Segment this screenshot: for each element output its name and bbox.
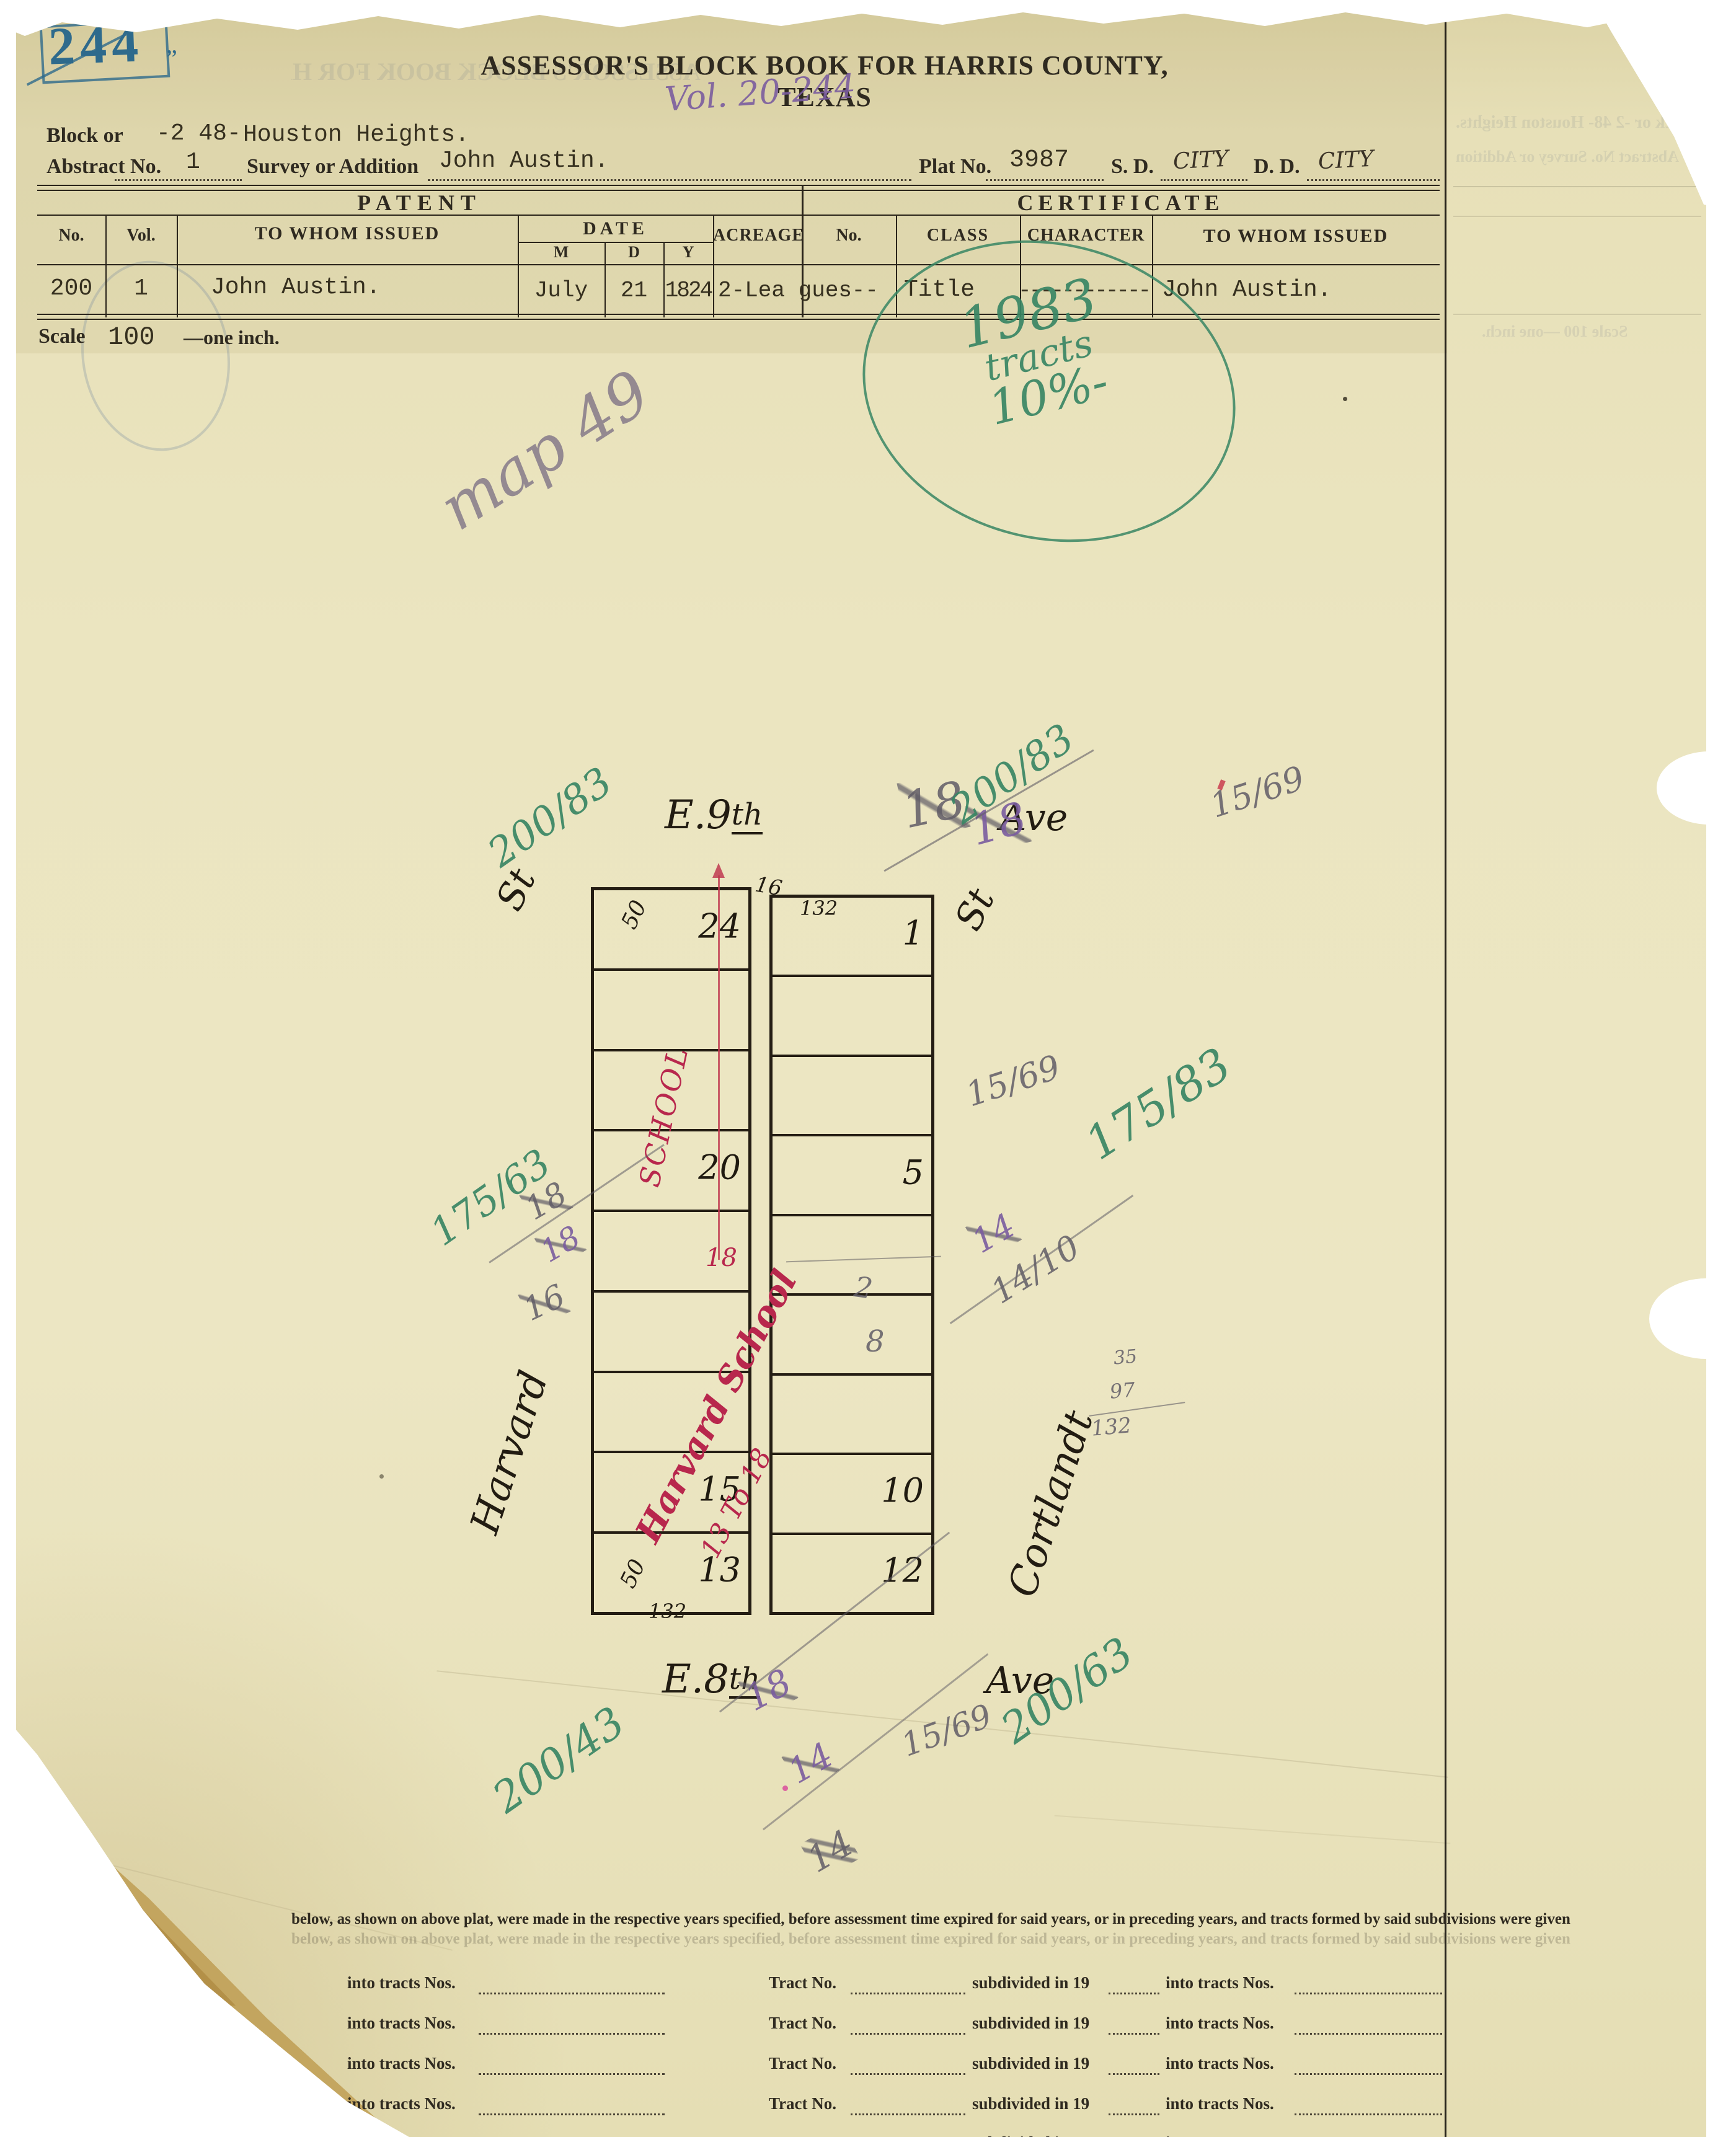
form-label: subdivided in 19 [972,1973,1089,1993]
bleed-through-abstract-line: Abstract No. Survey or Addition [1456,148,1679,166]
dotted-line [1295,2113,1442,2115]
subdivision-form-row: into tracts Nos.Tract No.subdivided in 1… [0,1973,1736,2002]
ditto-mark: „ [166,30,177,59]
ghost-text: -2 48- [1588,113,1631,132]
abstract-label: Abstract No. [46,155,161,179]
form-label: into tracts Nos. [1166,1973,1274,1993]
ghost-text: Abstract No. [1591,148,1679,166]
lot-number: 10 [881,1471,924,1510]
patent-section-title: PATENT [37,190,802,216]
sd-value-handwritten: CITY [1172,146,1229,175]
col-header-acreage: ACREAGE [713,226,802,246]
lot-row: 12 [773,1535,931,1612]
form-intro-ghost: below, as shown on above plat, were made… [291,1931,1570,1948]
dotted-line [479,2032,665,2035]
dim-16-alley: 16 [753,872,784,901]
scanned-assessor-block-book-page: 244 „ ASSESSOR'S BLOCK BOOK FOR HARRIS C… [0,0,1736,2137]
patent-vol: 1 [105,275,177,302]
form-label: into tracts Nos. [347,2014,456,2033]
lot-row: 24 [594,890,748,971]
street-e9-sup: th [732,797,763,834]
lot-number: 1 [903,914,924,953]
form-label: into tracts Nos. [347,2094,456,2113]
stamp-box [40,19,170,84]
dotted-line [1109,2073,1159,2075]
subdivision-form-row: into tracts Nos.Tract No.subdivided in 1… [0,2054,1736,2082]
form-label: Tract No. [769,1973,836,1993]
table-rule [37,215,1440,216]
ink-speck [1343,397,1347,401]
form-label: into tracts Nos. [1166,2094,1274,2113]
scale-suffix: —one inch. [184,326,280,349]
pencil-note-8: 8 [866,1324,885,1359]
ink-speck [379,1474,384,1479]
patent-month: July [518,278,604,303]
dotted-line [851,2073,965,2075]
dotted-line [1295,2032,1442,2035]
plat-no-value: 3987 [1009,146,1069,174]
dotted-line [1295,1992,1442,1994]
ghost-text: —one inch. [1482,322,1560,340]
lot-number: 5 [903,1153,924,1192]
street-e9: E.9 [665,792,732,838]
dotted-line [1109,2113,1159,2115]
patent-no: 200 [37,275,105,302]
form-label: subdivided in 19 [972,2054,1089,2073]
street-e8: E.8 [662,1657,729,1702]
dotted-line [1161,179,1247,181]
survey-value: John Austin. [439,148,609,174]
col-header-issued: TO WHOM ISSUED [177,223,518,244]
red-arrow-line [718,875,720,1260]
bleed-through-scale-line: Scale 100 —one inch. [1482,322,1627,341]
subdivision-form-row: into tracts Nos.Tract No.subdivided in 1… [0,2094,1736,2123]
lot-row: 1 [773,898,931,977]
lot-row [773,1376,931,1455]
dotted-line [479,2073,665,2075]
table-rule [37,264,1440,265]
page-right-margin [1706,0,1736,2137]
form-label: into tracts Nos. [1166,2014,1274,2033]
ghost-text: 100 [1564,322,1588,340]
dotted-line [986,179,1104,181]
block-label: Block or [46,124,123,148]
dd-label: D. D. [1254,155,1300,179]
dotted-line [428,179,911,181]
dotted-line [479,1992,665,1994]
patent-day: 21 [604,278,663,303]
pink-speck [782,1785,788,1791]
form-label: into tracts Nos. [347,1973,456,1993]
dotted-line [115,179,242,181]
dd-value-handwritten: CITY [1317,146,1375,175]
abstract-value: 1 [186,149,200,175]
lot-row: 10 [773,1455,931,1534]
form-label: into tracts Nos. [347,2054,456,2073]
form-intro-text: below, as shown on above plat, were made… [291,1911,1570,1928]
patent-issued: John Austin. [211,274,381,301]
certificate-no: --- [838,278,879,303]
dotted-line [851,2113,965,2115]
col-header-vol: Vol. [105,226,177,246]
page-left-margin [0,0,16,2137]
bleed-line [1453,216,1701,217]
form-label: into tracts Nos. [1166,2133,1274,2137]
lot-row [773,977,931,1056]
scale-label: Scale [38,325,86,348]
ghost-text: Houston Heights. [1456,113,1584,132]
block-addition: Houston Heights. [243,122,469,148]
page-margin-rule [1445,0,1446,2137]
form-label: Tract No. [769,2014,836,2033]
form-label: subdivided in 19 [972,2014,1089,2033]
col-header-date: DATE [518,218,713,239]
subdivision-form-row: into tracts Nos.Tract No.subdivided in 1… [0,2133,1736,2137]
lot-row [773,1057,931,1136]
form-label: into tracts Nos. [1166,2054,1274,2073]
col-header-no: No. [37,226,105,246]
pencil-sum-35: 35 [1113,1345,1138,1369]
bleed-through-block-line: Block or -2 48- Houston Heights. [1456,113,1698,133]
col-header-cert-no: No. [802,226,896,246]
lot-row: 5 [773,1136,931,1216]
patent-year: 1824 [662,278,714,303]
form-label: subdivided in 19 [972,2133,1089,2137]
pencil-sum-97: 97 [1109,1378,1136,1403]
form-label: Tract No. [769,2054,836,2073]
sd-label: S. D. [1111,155,1154,179]
lot-row [773,1296,931,1375]
dim-132-bottom: 132 [649,1599,686,1623]
plat-no-label: Plat No. [919,155,991,179]
col-header-y: Y [663,243,713,262]
patent-acreage: 2-Lea gues [718,278,852,303]
dotted-line [1109,1992,1159,1994]
street-label-e9th: E.9th [665,792,763,838]
dotted-line [1109,2032,1159,2035]
form-label: into tracts Nos. [347,2133,456,2137]
certificate-section-title: CERTIFICATE [802,190,1440,216]
dotted-line [851,1992,965,1994]
ghost-text: Block or [1635,113,1698,132]
bleed-line [1453,186,1701,187]
dotted-line [851,2032,965,2035]
form-label: Tract No. [769,2133,836,2137]
dim-132-top: 132 [800,896,838,920]
subdivision-form-row: into tracts Nos.Tract No.subdivided in 1… [0,2014,1736,2042]
scale-value: 100 [108,322,155,352]
pencil-sum-132: 132 [1090,1413,1132,1441]
ghost-text: Survey or Addition [1456,148,1587,166]
form-label: Tract No. [769,2094,836,2113]
red-18-note: 18 [706,1244,737,1272]
form-label: subdivided in 19 [972,2094,1089,2113]
dotted-line [1295,2073,1442,2075]
ghost-text: Scale [1592,322,1628,340]
dotted-line [1307,179,1440,181]
col-header-d: D [604,243,663,262]
table-rule-bottom [37,314,1440,320]
survey-label: Survey or Addition [247,155,418,179]
plat-block-right: 151012 [769,895,934,1615]
col-header-m: M [518,243,604,262]
bleed-line [1453,314,1701,315]
col-header-cert-issued: TO WHOM ISSUED [1152,226,1440,247]
block-value: -2 48- [156,120,241,147]
certificate-issued: John Austin. [1162,277,1332,303]
dotted-line [479,2113,665,2115]
lot-row [594,971,748,1051]
